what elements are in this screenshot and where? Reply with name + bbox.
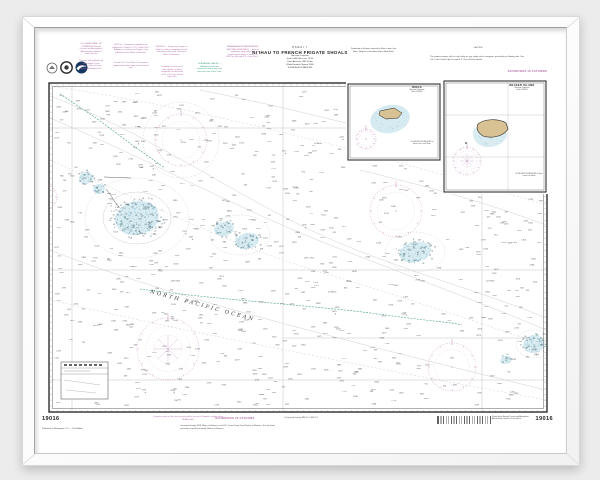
svg-text:8: 8 (218, 233, 219, 235)
svg-text:1172: 1172 (105, 105, 110, 107)
svg-text:3: 3 (218, 228, 219, 230)
svg-text:2149: 2149 (116, 164, 121, 166)
svg-text:7: 7 (396, 249, 397, 251)
svg-text:2624: 2624 (297, 374, 302, 376)
svg-text:2379: 2379 (371, 390, 376, 392)
svg-text:2719: 2719 (279, 252, 284, 254)
svg-text:1694: 1694 (288, 379, 293, 381)
svg-text:2260: 2260 (394, 259, 399, 261)
svg-text:14: 14 (522, 339, 524, 341)
svg-text:773: 773 (272, 155, 276, 157)
svg-text:2531: 2531 (246, 312, 251, 314)
svg-text:1006: 1006 (59, 272, 64, 274)
svg-text:14: 14 (220, 226, 222, 228)
svg-text:39: 39 (541, 344, 543, 346)
svg-text:42: 42 (247, 245, 249, 247)
svg-text:2678: 2678 (335, 307, 340, 309)
svg-text:1268: 1268 (531, 258, 536, 260)
svg-text:2148: 2148 (311, 271, 316, 273)
svg-text:2811: 2811 (420, 394, 425, 396)
svg-text:533: 533 (241, 173, 245, 175)
svg-text:20: 20 (83, 175, 85, 177)
svg-text:2008: 2008 (283, 189, 288, 191)
svg-text:588: 588 (469, 201, 473, 203)
svg-text:1567: 1567 (125, 276, 130, 278)
svg-text:36: 36 (242, 243, 244, 245)
svg-text:2106: 2106 (181, 142, 186, 144)
svg-text:2027: 2027 (382, 333, 387, 335)
svg-text:14: 14 (505, 360, 507, 362)
svg-text:2579: 2579 (274, 242, 279, 244)
svg-text:4: 4 (255, 247, 256, 249)
svg-text:2422: 2422 (339, 136, 344, 138)
svg-text:442: 442 (87, 289, 91, 291)
svg-text:35: 35 (256, 238, 258, 240)
svg-text:749: 749 (63, 180, 67, 182)
svg-text:808: 808 (507, 290, 511, 292)
svg-text:1476: 1476 (294, 187, 299, 189)
svg-text:2952: 2952 (252, 370, 257, 372)
svg-text:2803: 2803 (374, 381, 379, 383)
svg-text:1445: 1445 (385, 328, 390, 330)
svg-text:2205: 2205 (504, 224, 509, 226)
svg-text:2877: 2877 (158, 189, 163, 191)
svg-text:2316: 2316 (177, 109, 182, 111)
svg-text:632: 632 (69, 339, 73, 341)
svg-text:27: 27 (230, 221, 232, 223)
svg-text:20: 20 (506, 354, 508, 356)
svg-text:2062: 2062 (124, 405, 129, 407)
svg-text:2232: 2232 (514, 327, 519, 329)
svg-text:921: 921 (268, 215, 272, 217)
inset-nihoa (346, 82, 442, 162)
svg-text:454: 454 (302, 308, 306, 310)
svg-text:671: 671 (191, 185, 195, 187)
note-caution: CAUTION — Temporary changes or defects i… (155, 46, 188, 56)
svg-text:32: 32 (408, 256, 410, 258)
svg-text:47: 47 (221, 236, 223, 238)
svg-text:2054: 2054 (304, 155, 309, 157)
svg-text:1614: 1614 (70, 320, 75, 322)
svg-text:1300: 1300 (135, 141, 140, 143)
svg-text:1894: 1894 (323, 322, 328, 324)
svg-text:478: 478 (120, 292, 124, 294)
svg-text:724: 724 (504, 306, 508, 308)
svg-text:719: 719 (78, 213, 82, 215)
svg-text:2480: 2480 (424, 398, 429, 400)
svg-text:2526: 2526 (356, 241, 361, 243)
svg-text:2939: 2939 (271, 290, 276, 292)
svg-text:1760: 1760 (232, 195, 237, 197)
svg-text:2020: 2020 (154, 135, 159, 137)
inset-necker-title-block: NECKER ISLAND Mercator Projection Scale … (500, 84, 544, 91)
chart-title-block: HAWAI'I NI'IHAU TO FRENCH FRIGATE SHOALS… (238, 47, 362, 69)
svg-text:3: 3 (113, 211, 114, 213)
svg-text:531: 531 (82, 308, 86, 310)
svg-text:1835: 1835 (416, 335, 421, 337)
svg-text:2386: 2386 (81, 257, 86, 259)
svg-text:2825: 2825 (292, 242, 297, 244)
svg-text:2474: 2474 (397, 301, 402, 303)
svg-text:432: 432 (446, 239, 450, 241)
svg-text:640: 640 (211, 239, 215, 241)
svg-text:40: 40 (133, 227, 135, 229)
svg-text:862: 862 (353, 374, 357, 376)
svg-text:2088: 2088 (292, 121, 297, 123)
svg-text:2630: 2630 (173, 200, 178, 202)
svg-text:1986: 1986 (391, 206, 396, 208)
svg-text:27: 27 (403, 254, 405, 256)
svg-text:1766: 1766 (521, 240, 526, 242)
svg-text:45: 45 (113, 224, 115, 226)
inset-necker-note: SOUNDINGS IN FATHOMS at Mean Lower Low W… (515, 173, 543, 177)
svg-text:1557: 1557 (152, 352, 157, 354)
svg-text:1403: 1403 (235, 137, 240, 139)
svg-text:458: 458 (298, 237, 302, 239)
svg-text:2944: 2944 (393, 285, 398, 287)
svg-text:2505: 2505 (189, 139, 194, 141)
svg-text:900: 900 (267, 122, 271, 124)
svg-text:1807: 1807 (92, 122, 97, 124)
svg-text:2292: 2292 (305, 281, 310, 283)
svg-text:663: 663 (491, 280, 495, 282)
svg-text:1917: 1917 (282, 151, 287, 153)
chart-number-bottom-left: 19016 (42, 416, 60, 422)
svg-text:2078: 2078 (148, 180, 153, 182)
svg-text:764: 764 (109, 248, 113, 250)
svg-text:911: 911 (425, 383, 429, 385)
svg-text:41: 41 (127, 219, 129, 221)
svg-text:1143: 1143 (384, 213, 389, 215)
svg-text:579: 579 (488, 228, 492, 230)
svg-text:1671: 1671 (54, 138, 59, 140)
svg-text:10: 10 (403, 256, 405, 258)
svg-text:2735: 2735 (294, 333, 299, 335)
frame-miter (566, 453, 580, 466)
inset-nihoa-note: SOUNDINGS IN FATHOMS at Mean Lower Low W… (409, 141, 435, 145)
svg-text:29: 29 (408, 262, 410, 264)
svg-text:584: 584 (450, 358, 454, 360)
svg-text:11: 11 (140, 219, 142, 221)
svg-text:1249: 1249 (207, 323, 212, 325)
svg-text:2061: 2061 (399, 165, 404, 167)
svg-text:720: 720 (138, 339, 142, 341)
svg-text:2305: 2305 (416, 368, 421, 370)
svg-text:490: 490 (255, 403, 259, 405)
svg-text:1431: 1431 (136, 278, 141, 280)
svg-text:1104: 1104 (329, 228, 334, 230)
svg-text:2248: 2248 (527, 317, 532, 319)
svg-text:2553: 2553 (256, 228, 261, 230)
svg-text:46: 46 (132, 203, 134, 205)
svg-text:2048: 2048 (366, 257, 371, 259)
svg-text:1246: 1246 (371, 183, 376, 185)
svg-text:18: 18 (151, 227, 153, 229)
svg-text:1249: 1249 (498, 340, 503, 342)
svg-text:1380: 1380 (114, 330, 119, 332)
svg-text:525: 525 (89, 148, 93, 150)
svg-text:811: 811 (67, 143, 71, 145)
svg-text:768: 768 (216, 361, 220, 363)
svg-text:814: 814 (379, 222, 383, 224)
svg-text:3: 3 (539, 341, 540, 343)
svg-text:1406: 1406 (388, 305, 393, 307)
svg-text:2311: 2311 (363, 350, 368, 352)
svg-text:918: 918 (260, 249, 264, 251)
svg-text:10: 10 (228, 223, 230, 225)
svg-text:6: 6 (414, 262, 415, 264)
svg-text:2761: 2761 (320, 237, 325, 239)
svg-text:1143: 1143 (189, 219, 194, 221)
svg-text:2043: 2043 (385, 253, 390, 255)
svg-text:39: 39 (431, 259, 433, 261)
chart-graphic: 3219203642152614162620143114214510462933… (35, 28, 565, 452)
svg-text:1017: 1017 (150, 166, 155, 168)
svg-text:1000: 1000 (241, 331, 246, 333)
svg-text:2533: 2533 (202, 363, 207, 365)
svg-text:2502: 2502 (210, 99, 215, 101)
svg-text:1214: 1214 (111, 194, 116, 196)
svg-text:1416: 1416 (158, 250, 163, 252)
svg-text:1482: 1482 (403, 296, 408, 298)
svg-text:1877: 1877 (539, 200, 544, 202)
svg-text:701: 701 (296, 194, 300, 196)
svg-text:9: 9 (116, 222, 117, 224)
svg-text:1386: 1386 (115, 207, 120, 209)
svg-text:736: 736 (201, 219, 205, 221)
svg-text:1962: 1962 (275, 345, 280, 347)
svg-text:1933: 1933 (267, 246, 272, 248)
svg-text:2472: 2472 (250, 117, 255, 119)
svg-text:1743: 1743 (107, 260, 112, 262)
svg-text:1306: 1306 (512, 242, 517, 244)
svg-text:775: 775 (177, 400, 181, 402)
svg-text:846: 846 (344, 288, 348, 290)
svg-text:932: 932 (333, 232, 337, 234)
svg-text:1895: 1895 (116, 279, 121, 281)
svg-text:1020: 1020 (272, 392, 277, 394)
svg-text:1339: 1339 (488, 318, 493, 320)
soundings-label-bottom: SOUNDINGS IN FATHOMS (195, 417, 275, 421)
svg-text:1103: 1103 (268, 377, 273, 379)
svg-text:1387: 1387 (76, 101, 81, 103)
svg-text:1459: 1459 (149, 261, 154, 263)
svg-text:1867: 1867 (492, 295, 497, 297)
svg-text:26: 26 (153, 234, 155, 236)
svg-text:549: 549 (258, 258, 262, 260)
svg-text:2566: 2566 (98, 180, 103, 182)
svg-text:40: 40 (239, 232, 241, 234)
svg-text:12: 12 (423, 247, 425, 249)
svg-text:1780: 1780 (506, 399, 511, 401)
svg-text:2615: 2615 (431, 215, 436, 217)
svg-text:2264: 2264 (485, 292, 490, 294)
note-a: NOTE A — Navigation regulations are publ… (110, 44, 152, 54)
svg-text:19: 19 (251, 240, 253, 242)
svg-text:2925: 2925 (323, 333, 328, 335)
svg-text:38: 38 (404, 244, 406, 246)
svg-text:1829: 1829 (399, 393, 404, 395)
svg-text:2182: 2182 (306, 207, 311, 209)
soundings-label-top-right: SOUNDINGS IN FATHOMS (465, 70, 547, 74)
svg-text:2059: 2059 (273, 181, 278, 183)
svg-text:4: 4 (534, 345, 535, 347)
svg-text:24: 24 (538, 339, 540, 341)
svg-text:996: 996 (294, 288, 298, 290)
svg-text:881: 881 (154, 111, 158, 113)
svg-text:1766: 1766 (465, 247, 470, 249)
svg-text:1803: 1803 (135, 382, 140, 384)
svg-text:2360: 2360 (70, 221, 75, 223)
svg-text:1840: 1840 (425, 185, 430, 187)
svg-text:1108: 1108 (176, 280, 181, 282)
note-department: U.S. DEPARTMENT OF COMMERCE National Oce… (79, 43, 103, 56)
svg-text:18: 18 (522, 347, 524, 349)
svg-text:43: 43 (133, 234, 135, 236)
svg-text:903: 903 (154, 262, 158, 264)
svg-text:1323: 1323 (263, 237, 268, 239)
svg-text:2483: 2483 (460, 331, 465, 333)
svg-text:2967: 2967 (125, 307, 130, 309)
svg-text:3: 3 (134, 203, 135, 205)
svg-text:2386: 2386 (217, 278, 222, 280)
svg-text:609: 609 (219, 218, 223, 220)
svg-text:1361: 1361 (528, 223, 533, 225)
svg-text:2939: 2939 (333, 109, 338, 111)
svg-text:2306: 2306 (324, 370, 329, 372)
svg-text:3: 3 (245, 240, 246, 242)
svg-text:882: 882 (223, 242, 227, 244)
svg-text:2898: 2898 (316, 303, 321, 305)
svg-text:1290: 1290 (285, 293, 290, 295)
svg-text:2049: 2049 (55, 294, 60, 296)
svg-text:1068: 1068 (376, 243, 381, 245)
svg-text:2135: 2135 (312, 151, 317, 153)
svg-text:1834: 1834 (57, 207, 62, 209)
svg-text:32: 32 (528, 346, 530, 348)
svg-text:39: 39 (412, 244, 414, 246)
svg-text:2252: 2252 (292, 345, 297, 347)
svg-text:1108: 1108 (332, 267, 337, 269)
svg-text:1278: 1278 (471, 206, 476, 208)
svg-text:681: 681 (528, 229, 532, 231)
svg-text:11: 11 (116, 204, 118, 206)
inset-scale: Scale 1:80,000 (398, 91, 436, 93)
svg-text:2124: 2124 (200, 225, 205, 227)
svg-text:1554: 1554 (238, 290, 243, 292)
svg-text:11: 11 (246, 238, 248, 240)
svg-text:30: 30 (229, 231, 231, 233)
svg-text:42: 42 (224, 225, 226, 227)
svg-text:47: 47 (128, 237, 130, 239)
svg-text:2654: 2654 (432, 209, 437, 211)
svg-text:574: 574 (63, 191, 67, 193)
svg-text:1990: 1990 (182, 394, 187, 396)
svg-text:1635: 1635 (64, 315, 69, 317)
svg-text:5: 5 (403, 259, 404, 261)
svg-text:31: 31 (120, 205, 122, 207)
svg-text:2341: 2341 (453, 385, 458, 387)
svg-text:1112: 1112 (84, 236, 89, 238)
svg-text:2973: 2973 (207, 383, 212, 385)
region-label: HAWAI'I (238, 47, 362, 49)
svg-text:1705: 1705 (143, 191, 148, 193)
svg-text:2226: 2226 (74, 303, 79, 305)
svg-text:1592: 1592 (267, 141, 272, 143)
svg-text:21: 21 (93, 186, 95, 188)
svg-text:2293: 2293 (132, 266, 137, 268)
svg-text:2896: 2896 (230, 148, 235, 150)
svg-text:454: 454 (443, 386, 447, 388)
svg-text:30: 30 (260, 237, 262, 239)
svg-text:976: 976 (98, 132, 102, 134)
svg-text:1334: 1334 (141, 141, 146, 143)
svg-text:19: 19 (124, 229, 126, 231)
svg-text:1604: 1604 (537, 213, 542, 215)
svg-text:1134: 1134 (179, 368, 184, 370)
svg-text:1586: 1586 (170, 171, 175, 173)
svg-text:1834: 1834 (339, 330, 344, 332)
svg-text:2439: 2439 (302, 225, 307, 227)
svg-text:828: 828 (99, 324, 103, 326)
svg-text:1937: 1937 (279, 246, 284, 248)
svg-text:2487: 2487 (334, 115, 339, 117)
svg-text:3: 3 (136, 228, 137, 230)
source-diagram-box (61, 362, 108, 399)
svg-text:1403: 1403 (78, 264, 83, 266)
svg-text:2567: 2567 (189, 236, 194, 238)
svg-text:2390: 2390 (348, 261, 353, 263)
svg-text:6: 6 (398, 253, 399, 255)
svg-text:1349: 1349 (222, 247, 227, 249)
svg-text:1343: 1343 (161, 185, 166, 187)
svg-text:9: 9 (417, 254, 418, 256)
svg-text:1479: 1479 (258, 319, 263, 321)
svg-text:1520: 1520 (263, 329, 268, 331)
svg-text:2305: 2305 (305, 399, 310, 401)
svg-text:9: 9 (220, 233, 221, 235)
printer-note: Printed by the National Oceanic and Atmo… (492, 416, 530, 420)
svg-text:1576: 1576 (476, 251, 481, 253)
svg-text:1636: 1636 (313, 123, 318, 125)
note-a-supplement: Consult U.S. Coast Pilot 7 for important… (111, 62, 151, 70)
svg-text:20: 20 (154, 231, 156, 233)
svg-text:2201: 2201 (533, 282, 538, 284)
svg-text:2248: 2248 (111, 321, 116, 323)
svg-text:601: 601 (198, 146, 202, 148)
svg-text:2318: 2318 (221, 384, 226, 386)
svg-text:2703: 2703 (339, 381, 344, 383)
svg-text:2602: 2602 (311, 287, 316, 289)
svg-text:9: 9 (138, 228, 139, 230)
svg-text:1709: 1709 (319, 172, 324, 174)
svg-text:1673: 1673 (317, 336, 322, 338)
svg-text:534: 534 (485, 266, 489, 268)
rock-symbol (465, 142, 467, 144)
svg-text:2740: 2740 (266, 389, 271, 391)
svg-text:737: 737 (264, 222, 268, 224)
svg-text:2881: 2881 (358, 369, 363, 371)
svg-text:1814: 1814 (338, 371, 343, 373)
svg-text:2887: 2887 (122, 101, 127, 103)
svg-text:2217: 2217 (134, 397, 139, 399)
svg-text:33: 33 (216, 222, 218, 224)
svg-text:14: 14 (413, 260, 415, 262)
svg-text:2163: 2163 (311, 327, 316, 329)
svg-text:2663: 2663 (113, 101, 118, 103)
svg-text:1936: 1936 (204, 339, 209, 341)
svg-text:1665: 1665 (383, 182, 388, 184)
